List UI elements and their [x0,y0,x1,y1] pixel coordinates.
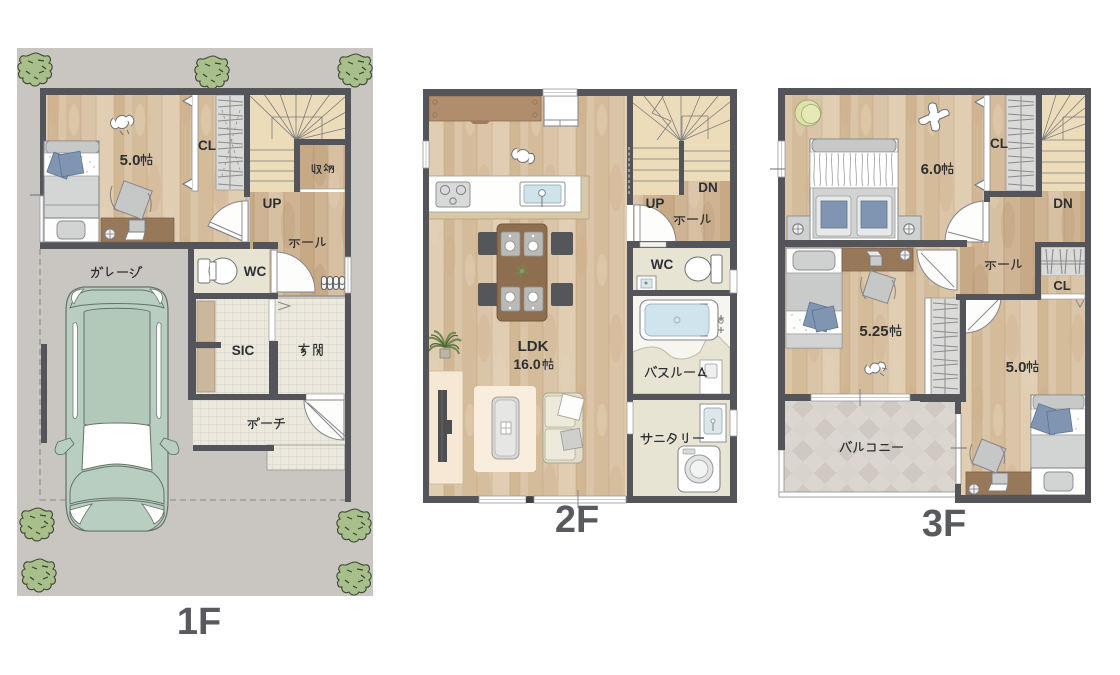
svg-text:5.0: 5.0 [120,152,141,169]
svg-text:5.0: 5.0 [1006,359,1027,376]
svg-text:5.25: 5.25 [859,323,888,340]
svg-text:UP: UP [263,196,282,211]
svg-text:UP: UP [646,196,665,211]
svg-text:WC: WC [244,264,267,279]
svg-text:WC: WC [651,257,674,272]
svg-text:LDK: LDK [518,338,549,355]
svg-text:CL: CL [990,136,1008,151]
svg-text:1F: 1F [177,601,221,643]
svg-text:16.0: 16.0 [513,356,540,372]
svg-text:3F: 3F [922,503,966,545]
svg-text:6.0: 6.0 [921,161,942,178]
svg-text:CL: CL [198,138,216,153]
svg-text:CL: CL [1053,278,1070,293]
svg-text:SIC: SIC [232,343,255,358]
svg-text:DN: DN [698,180,718,195]
svg-text:DN: DN [1053,196,1073,211]
svg-text:2F: 2F [555,499,599,541]
